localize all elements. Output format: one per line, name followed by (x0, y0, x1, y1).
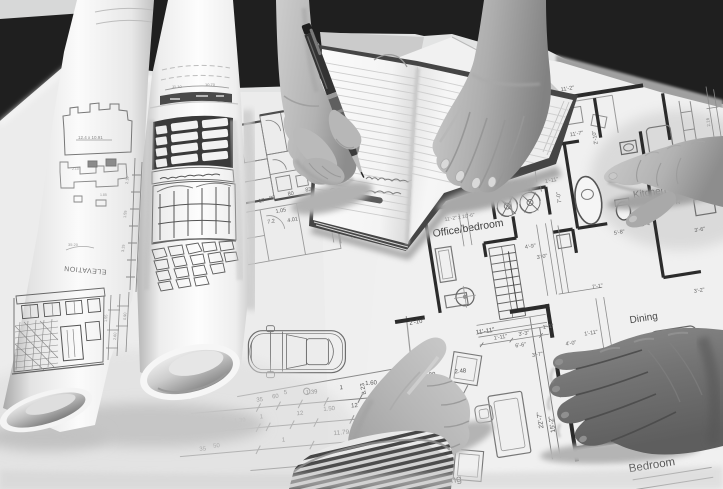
svg-text:2.10: 2.10 (125, 176, 130, 184)
svg-text:17: 17 (258, 198, 265, 205)
svg-text:12.4 x 10.91: 12.4 x 10.91 (78, 135, 103, 140)
svg-text:0.90: 0.90 (123, 312, 127, 320)
svg-text:80: 80 (287, 191, 294, 198)
svg-text:3.15: 3.15 (121, 244, 126, 252)
svg-text:2.10: 2.10 (72, 167, 79, 171)
svg-text:2.60: 2.60 (113, 332, 117, 340)
svg-text:1.55: 1.55 (123, 210, 128, 218)
svg-text:35 20: 35 20 (68, 242, 79, 247)
svg-text:83: 83 (269, 195, 276, 202)
svg-text:2.48: 2.48 (454, 368, 467, 375)
svg-text:1.85: 1.85 (100, 193, 107, 197)
svg-text:12: 12 (351, 403, 359, 410)
svg-text:1.55: 1.55 (104, 314, 108, 322)
svg-text:1.60: 1.60 (365, 380, 378, 387)
svg-text:10.70: 10.70 (205, 82, 216, 87)
svg-text:11.10: 11.10 (172, 84, 182, 89)
